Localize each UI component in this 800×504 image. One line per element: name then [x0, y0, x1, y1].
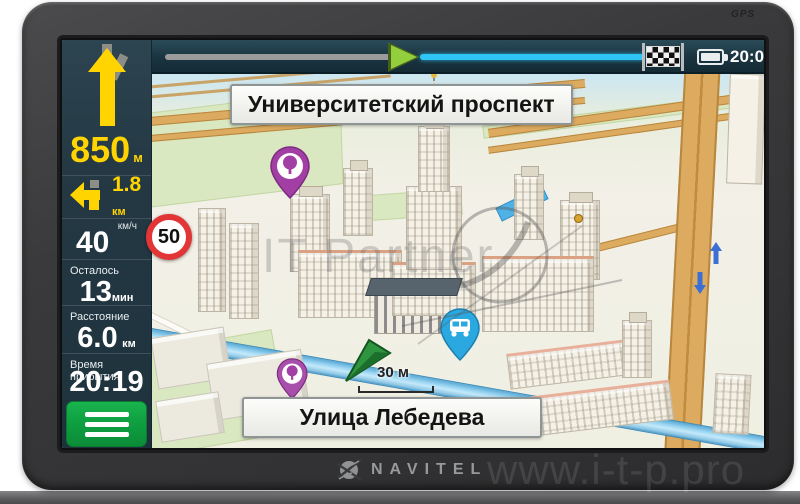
arrival-time-section[interactable]: Время прибытия 20:19 [62, 354, 151, 396]
brand-wordmark: NAVITEL [371, 461, 487, 479]
front-building-roof [365, 278, 463, 296]
finish-flag-icon [642, 45, 684, 69]
main-tower-top [418, 126, 450, 192]
distance-value: 850 [70, 129, 130, 170]
speed-section[interactable]: км/ч 40 [62, 219, 151, 259]
main-tower-mid [406, 186, 462, 270]
value: 20:19 [69, 366, 143, 398]
building-wing [482, 256, 594, 332]
unit: км [122, 338, 136, 350]
next-street-sign: Университетский проспект [230, 84, 573, 125]
navigator-screen: 30 м IT Partner Университетский проспект… [60, 38, 766, 450]
secondary-maneuver[interactable]: 1.8 км [62, 176, 151, 218]
hamburger-menu-icon [85, 422, 129, 427]
primary-maneuver[interactable]: 850м [62, 40, 151, 175]
oneway-arrow-up-icon [710, 242, 722, 264]
road-continuation-stub [90, 180, 99, 188]
distance-value: 1.8 [112, 173, 141, 196]
building-tower [343, 168, 373, 236]
poi-pin-transport-icon[interactable] [438, 308, 482, 362]
navigator-device-bezel: GPS [22, 2, 794, 490]
product-photo-canvas: GPS [0, 0, 800, 504]
building [726, 74, 766, 185]
distance-unit: км [112, 206, 126, 218]
brand-logo: NAVITEL [336, 457, 487, 483]
time-remaining-section[interactable]: Осталось 13мин [62, 260, 151, 305]
straight-ahead-arrow-icon [88, 48, 132, 126]
route-progress-remaining-track[interactable] [420, 54, 645, 60]
finish-flag-cloth [646, 46, 680, 67]
route-progress-marker-inner [391, 45, 417, 69]
menu-button[interactable] [66, 401, 147, 447]
oneway-arrow-down-icon [694, 272, 706, 294]
map-scale-bracket [358, 386, 434, 393]
route-progress-done-track[interactable] [165, 54, 395, 60]
speed-value: 40 [76, 226, 109, 260]
arrow-head [88, 48, 126, 72]
time-remaining-value: 13мин [62, 276, 151, 309]
building-tower [622, 320, 652, 378]
clock-time: 20:06 [730, 47, 766, 67]
poi-pin-park-icon[interactable] [275, 358, 309, 400]
primary-maneuver-distance: 850м [62, 129, 151, 171]
map-canvas[interactable]: 30 м IT Partner Университетский проспект… [62, 74, 766, 450]
map-scale-label: 30 м [338, 364, 448, 381]
building-tower [514, 174, 544, 240]
status-bar: 20:06 [152, 40, 766, 74]
building [229, 223, 259, 319]
arrow-shaft [100, 70, 115, 126]
arrow-arm [83, 190, 100, 200]
route-panel: 850м 1.8 км [62, 40, 152, 450]
speed-unit-label: км/ч [118, 221, 137, 232]
watermark-site-text: www.i-t-p.pro [487, 446, 745, 494]
building [198, 208, 226, 312]
poi-pin-park-icon[interactable] [268, 146, 312, 200]
arrival-time-value: 20:19 [62, 366, 151, 399]
building [712, 373, 751, 435]
tower-clock-face [574, 214, 583, 223]
turn-left-arrow-icon [70, 182, 104, 212]
battery-icon [697, 49, 724, 65]
speed-limit-badge: 50 [146, 214, 192, 260]
navitel-logo-icon [336, 457, 362, 483]
hamburger-menu-icon [85, 432, 129, 437]
value: 13 [80, 276, 112, 308]
arrow-head [70, 182, 84, 208]
secondary-maneuver-distance: 1.8 км [112, 173, 151, 221]
distance-remaining-section[interactable]: Расстояние 6.0 км [62, 306, 151, 353]
gps-bezel-label: GPS [731, 9, 755, 20]
unit: мин [112, 292, 134, 304]
current-street-sign: Улица Лебедева [242, 397, 542, 438]
distance-remaining-value: 6.0 км [62, 322, 151, 355]
distance-unit: м [133, 150, 143, 165]
value: 6.0 [77, 322, 117, 354]
hamburger-menu-icon [85, 412, 129, 417]
building-row [506, 338, 637, 389]
